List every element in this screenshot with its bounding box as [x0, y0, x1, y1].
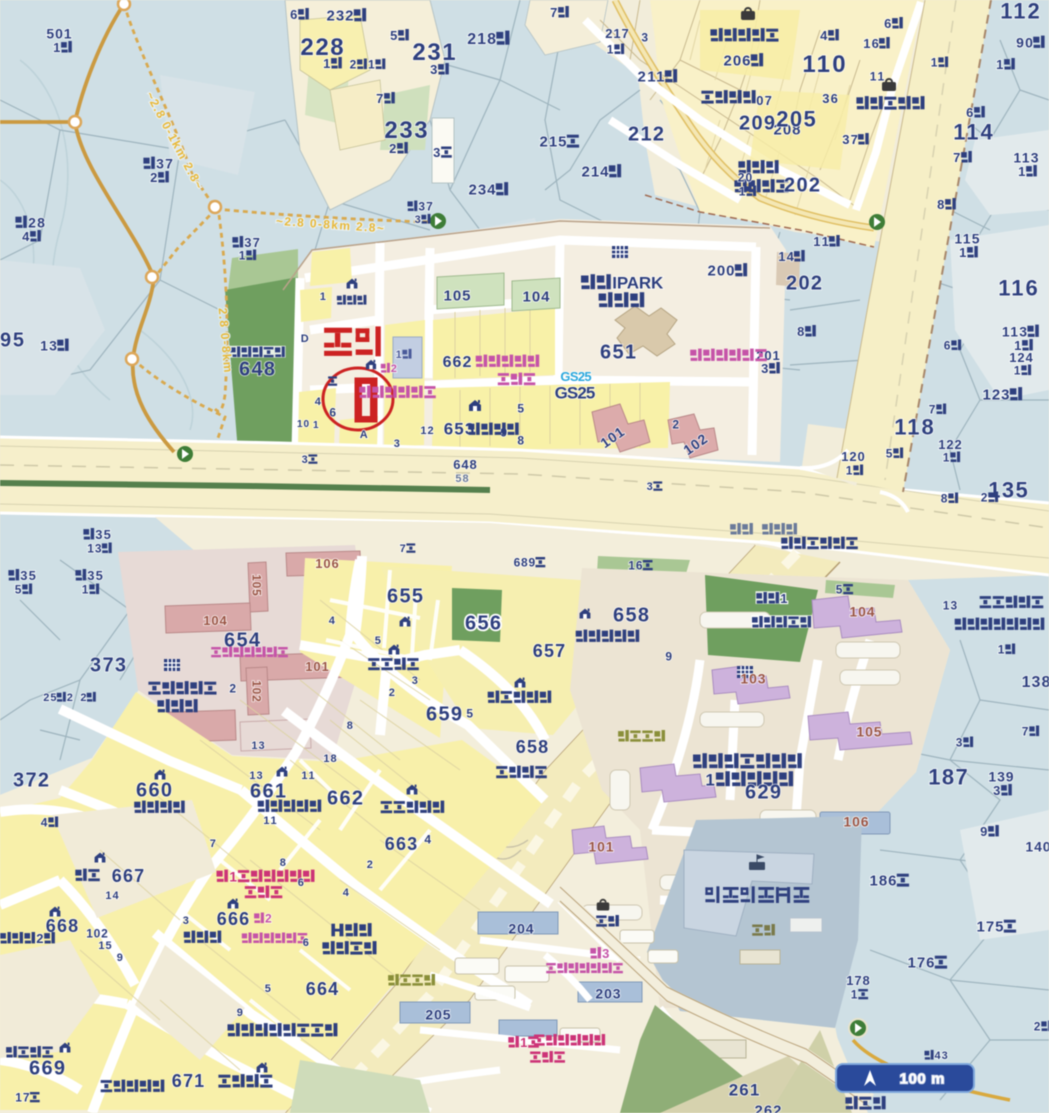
svg-text:206: 206 — [724, 53, 751, 70]
svg-text:58: 58 — [455, 473, 468, 485]
svg-text:1: 1 — [229, 868, 237, 884]
svg-text:373: 373 — [90, 655, 126, 677]
svg-text:1: 1 — [931, 56, 938, 70]
svg-text:655: 655 — [387, 586, 423, 608]
svg-text:07: 07 — [756, 93, 772, 108]
svg-text:104: 104 — [849, 603, 874, 619]
svg-text:663: 663 — [385, 834, 417, 854]
svg-text:118: 118 — [894, 414, 934, 439]
svg-text:13: 13 — [87, 542, 102, 556]
svg-text:1: 1 — [313, 420, 319, 431]
svg-text:2: 2 — [265, 912, 272, 926]
svg-text:106: 106 — [315, 556, 338, 571]
svg-text:3: 3 — [394, 438, 400, 450]
svg-text:1: 1 — [520, 1035, 527, 1050]
svg-text:11: 11 — [263, 815, 276, 827]
svg-text:2: 2 — [981, 491, 988, 505]
svg-text:664: 664 — [306, 979, 338, 999]
svg-text:2: 2 — [350, 58, 357, 72]
svg-text:GS25: GS25 — [560, 369, 591, 384]
svg-text:2: 2 — [150, 170, 157, 185]
svg-text:662: 662 — [443, 354, 472, 371]
svg-text:5: 5 — [886, 447, 893, 461]
svg-text:5: 5 — [375, 635, 381, 647]
svg-text:IPARK: IPARK — [612, 274, 664, 293]
svg-text:629: 629 — [745, 782, 781, 804]
svg-text:3: 3 — [641, 31, 648, 45]
svg-text:1: 1 — [705, 771, 714, 790]
svg-text:105: 105 — [856, 723, 881, 739]
svg-text:5: 5 — [265, 983, 271, 995]
svg-text:3: 3 — [433, 145, 440, 160]
svg-text:8: 8 — [941, 492, 948, 506]
svg-text:6: 6 — [290, 7, 297, 22]
svg-text:1: 1 — [368, 58, 375, 72]
svg-text:16: 16 — [628, 559, 643, 573]
svg-text:13: 13 — [251, 740, 264, 752]
svg-text:37: 37 — [156, 155, 173, 171]
svg-text:1: 1 — [959, 245, 966, 260]
svg-text:6: 6 — [966, 105, 973, 120]
svg-text:135: 135 — [988, 477, 1028, 502]
svg-text:667: 667 — [112, 866, 144, 886]
svg-text:16: 16 — [863, 36, 879, 51]
svg-text:8: 8 — [280, 857, 286, 869]
svg-text:209: 209 — [739, 113, 775, 135]
svg-text:666: 666 — [217, 909, 249, 929]
svg-text:7: 7 — [400, 543, 406, 555]
svg-text:4: 4 — [315, 396, 322, 408]
svg-text:212: 212 — [628, 124, 664, 146]
svg-text:262: 262 — [755, 1103, 782, 1113]
svg-text:175: 175 — [977, 919, 1004, 936]
svg-text:114: 114 — [953, 119, 993, 144]
svg-text:90: 90 — [1016, 34, 1033, 50]
svg-text:1: 1 — [607, 43, 614, 57]
svg-text:7: 7 — [376, 91, 383, 106]
svg-text:202: 202 — [784, 175, 820, 197]
svg-text:2: 2 — [389, 141, 396, 156]
svg-text:1: 1 — [851, 988, 858, 1002]
svg-text:1: 1 — [82, 583, 89, 597]
svg-text:7: 7 — [550, 5, 557, 20]
svg-text:660: 660 — [136, 780, 172, 802]
svg-text:6: 6 — [298, 877, 304, 889]
svg-text:3: 3 — [302, 454, 308, 466]
svg-text:138: 138 — [1022, 674, 1049, 691]
svg-text:4: 4 — [424, 833, 431, 847]
svg-text:14: 14 — [778, 249, 794, 264]
svg-text:200: 200 — [708, 263, 735, 280]
svg-text:4: 4 — [41, 816, 48, 830]
svg-text:101: 101 — [588, 838, 613, 854]
svg-text:A: A — [360, 429, 368, 441]
svg-text:8: 8 — [937, 197, 944, 212]
svg-text:1: 1 — [320, 291, 326, 303]
svg-text:110: 110 — [802, 51, 845, 78]
svg-text:105: 105 — [249, 574, 263, 596]
svg-text:5: 5 — [836, 583, 843, 597]
svg-text:372: 372 — [13, 770, 49, 792]
svg-text:120: 120 — [841, 449, 864, 464]
svg-text:6: 6 — [329, 406, 336, 420]
svg-text:3: 3 — [956, 736, 963, 750]
svg-text:123: 123 — [983, 387, 1010, 404]
svg-text:2: 2 — [389, 687, 395, 699]
svg-text:648: 648 — [453, 457, 476, 472]
svg-text:12: 12 — [420, 425, 433, 437]
svg-text:13: 13 — [943, 599, 958, 613]
svg-text:17: 17 — [15, 1091, 30, 1105]
svg-text:4: 4 — [343, 887, 350, 899]
svg-text:205: 205 — [425, 1006, 450, 1022]
svg-text:5: 5 — [466, 707, 473, 721]
svg-text:37: 37 — [842, 132, 858, 147]
svg-text:2: 2 — [1034, 1020, 1041, 1034]
svg-text:35: 35 — [87, 568, 103, 583]
svg-text:6: 6 — [303, 937, 309, 949]
svg-text:228: 228 — [300, 34, 343, 61]
svg-text:1: 1 — [396, 349, 402, 361]
svg-text:104: 104 — [523, 289, 551, 306]
svg-text:662: 662 — [327, 788, 363, 810]
svg-text:140: 140 — [1025, 838, 1049, 854]
svg-text:656: 656 — [465, 613, 501, 635]
svg-text:20: 20 — [738, 171, 753, 185]
svg-text:11: 11 — [301, 770, 314, 782]
svg-text:2: 2 — [229, 682, 236, 696]
svg-text:8: 8 — [797, 324, 804, 339]
svg-text:648: 648 — [239, 359, 275, 381]
svg-text:9: 9 — [237, 1007, 243, 1019]
svg-text:217: 217 — [605, 26, 628, 41]
svg-text:1: 1 — [739, 185, 746, 199]
svg-text:13: 13 — [249, 770, 262, 782]
svg-text:9: 9 — [980, 824, 987, 839]
svg-text:113: 113 — [1002, 323, 1027, 339]
svg-text:95: 95 — [0, 330, 24, 352]
svg-text:234: 234 — [469, 182, 497, 199]
svg-text:176: 176 — [908, 955, 935, 972]
svg-text:186: 186 — [870, 873, 897, 890]
svg-text:4: 4 — [820, 28, 828, 43]
svg-text:11: 11 — [813, 234, 829, 249]
svg-text:25: 25 — [43, 692, 56, 704]
svg-text:501: 501 — [46, 25, 71, 41]
svg-text:18: 18 — [323, 753, 336, 765]
svg-text:100 m: 100 m — [900, 1071, 945, 1088]
svg-text:3: 3 — [647, 481, 653, 493]
svg-text:7: 7 — [210, 838, 216, 850]
svg-text:9: 9 — [117, 952, 123, 964]
svg-text:3: 3 — [602, 946, 609, 961]
svg-text:37: 37 — [418, 200, 433, 214]
svg-text:104: 104 — [203, 613, 227, 628]
svg-text:203: 203 — [595, 985, 620, 1001]
svg-text:1: 1 — [998, 643, 1005, 657]
svg-text:2: 2 — [672, 418, 679, 432]
svg-text:1: 1 — [239, 249, 246, 263]
svg-text:103: 103 — [740, 670, 765, 686]
svg-text:122: 122 — [938, 437, 961, 452]
svg-text:10: 10 — [297, 419, 309, 430]
svg-text:205: 205 — [776, 106, 816, 131]
svg-text:261: 261 — [729, 1081, 760, 1100]
svg-text:187: 187 — [928, 764, 968, 789]
svg-text:657: 657 — [533, 641, 565, 661]
svg-text:8: 8 — [347, 720, 353, 732]
svg-text:211: 211 — [638, 69, 665, 86]
svg-text:112: 112 — [1000, 0, 1040, 23]
svg-text:35: 35 — [20, 568, 36, 583]
svg-text:3: 3 — [183, 915, 189, 927]
svg-text:1: 1 — [53, 40, 60, 55]
svg-text:5: 5 — [15, 583, 22, 597]
svg-text:2: 2 — [367, 859, 373, 871]
svg-text:1: 1 — [943, 451, 950, 465]
svg-text:5: 5 — [390, 28, 397, 43]
svg-text:202: 202 — [786, 273, 822, 295]
svg-text:3: 3 — [430, 62, 437, 77]
svg-text:6: 6 — [944, 339, 951, 353]
svg-text:2: 2 — [36, 931, 43, 946]
svg-text:658: 658 — [516, 737, 548, 757]
svg-text:4: 4 — [329, 615, 336, 627]
svg-text:28: 28 — [28, 214, 45, 230]
svg-text:6: 6 — [884, 16, 891, 31]
svg-text:102: 102 — [86, 927, 108, 941]
svg-text:13: 13 — [40, 337, 57, 353]
svg-text:D: D — [301, 333, 309, 345]
svg-text:36: 36 — [822, 91, 838, 106]
svg-text:115: 115 — [954, 230, 979, 246]
svg-text:669: 669 — [29, 1058, 65, 1080]
svg-text:15: 15 — [98, 940, 111, 952]
svg-text:1: 1 — [1014, 364, 1021, 378]
svg-text:7: 7 — [1022, 725, 1029, 739]
svg-text:1: 1 — [846, 464, 853, 478]
svg-text:37: 37 — [244, 235, 260, 250]
svg-text:689: 689 — [514, 556, 536, 570]
svg-text:113: 113 — [1013, 149, 1038, 165]
svg-text:139: 139 — [988, 768, 1013, 784]
svg-text:658: 658 — [613, 605, 649, 627]
svg-text:204: 204 — [508, 920, 533, 936]
svg-text:214: 214 — [582, 164, 610, 181]
svg-text:102: 102 — [249, 680, 263, 702]
svg-text:1: 1 — [1018, 164, 1025, 179]
svg-text:659: 659 — [426, 704, 462, 726]
svg-text:3: 3 — [993, 783, 1000, 798]
svg-text:5: 5 — [517, 402, 524, 416]
svg-text:101: 101 — [305, 659, 328, 674]
svg-text:GS25: GS25 — [555, 384, 596, 403]
svg-text:7: 7 — [929, 403, 936, 417]
svg-text:3: 3 — [761, 361, 768, 376]
svg-text:1: 1 — [996, 57, 1003, 72]
svg-text:661: 661 — [250, 781, 286, 803]
svg-text:106: 106 — [843, 813, 868, 829]
svg-text:105: 105 — [444, 288, 471, 305]
svg-text:218: 218 — [467, 31, 496, 48]
svg-text:7: 7 — [953, 150, 960, 165]
svg-text:9: 9 — [665, 650, 672, 664]
svg-text:2: 2 — [391, 363, 397, 375]
svg-text:8: 8 — [517, 434, 524, 448]
svg-text:178: 178 — [846, 973, 869, 988]
svg-text:1: 1 — [780, 591, 787, 606]
svg-text:116: 116 — [998, 275, 1038, 300]
svg-text:671: 671 — [172, 1071, 204, 1091]
svg-text:14: 14 — [105, 890, 119, 902]
svg-text:43: 43 — [935, 1050, 948, 1062]
svg-text:11: 11 — [870, 70, 885, 84]
svg-text:232: 232 — [327, 8, 354, 25]
svg-text:1: 1 — [323, 56, 330, 71]
svg-text:668: 668 — [46, 916, 78, 936]
svg-text:3: 3 — [415, 214, 421, 226]
svg-text:35: 35 — [95, 527, 111, 542]
svg-text:215: 215 — [540, 134, 567, 151]
svg-text:3: 3 — [412, 675, 418, 687]
svg-text:4: 4 — [22, 229, 30, 244]
svg-text:651: 651 — [600, 342, 636, 364]
